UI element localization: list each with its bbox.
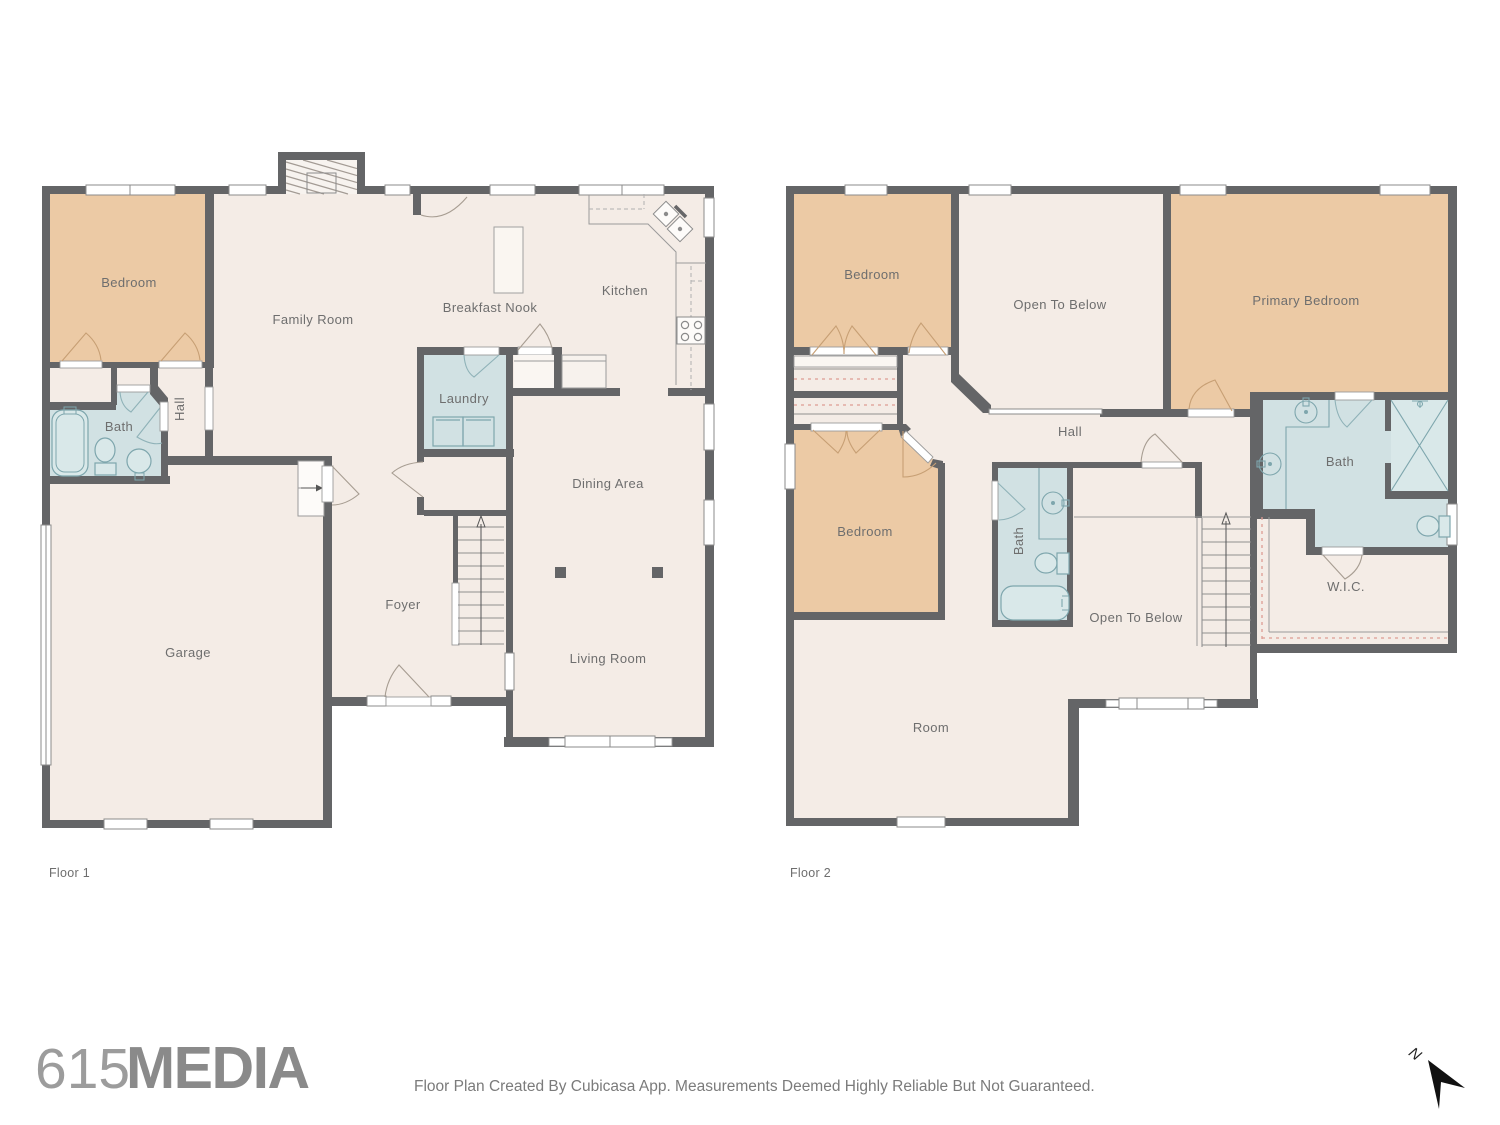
svg-text:Garage: Garage [165, 645, 211, 660]
svg-text:Floor 1: Floor 1 [49, 866, 90, 880]
svg-text:Open To Below: Open To Below [1089, 610, 1182, 625]
svg-text:Floor 2: Floor 2 [790, 866, 831, 880]
svg-text:Hall: Hall [1058, 424, 1082, 439]
svg-text:Dining Area: Dining Area [572, 476, 644, 491]
svg-text:Bedroom: Bedroom [101, 275, 157, 290]
svg-text:MEDIA: MEDIA [126, 1035, 310, 1101]
svg-text:Hall: Hall [172, 397, 187, 421]
svg-text:Bath: Bath [105, 419, 133, 434]
svg-text:W.I.C.: W.I.C. [1327, 579, 1365, 594]
svg-text:Bath: Bath [1011, 527, 1026, 555]
svg-text:615: 615 [35, 1037, 130, 1101]
svg-text:Floor Plan Created By Cubicasa: Floor Plan Created By Cubicasa App. Meas… [414, 1078, 1095, 1095]
svg-text:Kitchen: Kitchen [602, 283, 648, 298]
svg-text:Family Room: Family Room [273, 312, 354, 327]
svg-text:Bath: Bath [1326, 454, 1354, 469]
svg-text:Breakfast Nook: Breakfast Nook [443, 300, 538, 315]
svg-text:Open To Below: Open To Below [1013, 297, 1106, 312]
svg-text:N: N [1405, 1044, 1424, 1064]
svg-text:Primary Bedroom: Primary Bedroom [1252, 293, 1359, 308]
svg-text:Living Room: Living Room [570, 651, 647, 666]
svg-text:Room: Room [913, 720, 949, 735]
svg-text:Bedroom: Bedroom [837, 524, 893, 539]
svg-text:Foyer: Foyer [385, 597, 421, 612]
svg-text:Laundry: Laundry [439, 391, 489, 406]
svg-text:Bedroom: Bedroom [844, 267, 900, 282]
